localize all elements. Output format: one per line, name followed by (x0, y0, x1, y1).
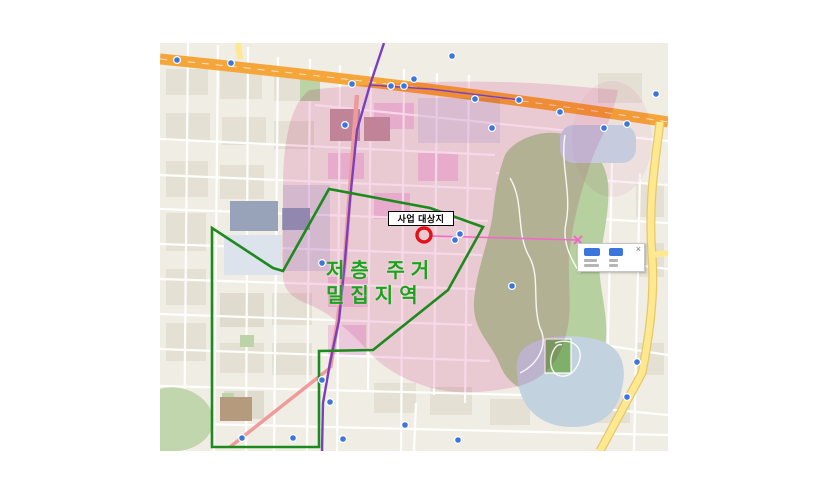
transit-marker-icon[interactable] (472, 96, 479, 103)
transit-marker-icon[interactable] (319, 260, 326, 267)
popup-text-line (584, 264, 599, 267)
transit-marker-icon[interactable] (319, 377, 326, 384)
density-label-line2: 밀집지역 (326, 284, 435, 309)
transit-marker-icon[interactable] (457, 231, 464, 238)
density-label-line1: 저층 주거 (326, 259, 435, 284)
map-canvas[interactable]: 사업 대상지 저층 주거 밀집지역 × (160, 43, 668, 451)
transit-marker-icon[interactable] (455, 437, 462, 444)
transit-marker-icon[interactable] (411, 76, 418, 83)
transit-marker-icon[interactable] (516, 97, 523, 104)
transit-marker-icon[interactable] (634, 359, 641, 366)
density-area-label: 저층 주거 밀집지역 (326, 259, 435, 309)
site-label: 사업 대상지 (388, 211, 454, 226)
page: { "map": { "overlay_labels": { "site": "… (0, 0, 833, 500)
transit-marker-icon[interactable] (388, 83, 395, 90)
transit-marker-icon[interactable] (653, 91, 660, 98)
transit-marker-icon[interactable] (449, 53, 456, 60)
close-icon[interactable]: × (636, 245, 641, 254)
transit-marker-icon[interactable] (342, 122, 349, 129)
transit-line-badge (584, 248, 600, 256)
popup-text-line (609, 259, 618, 262)
popup-text-line (584, 259, 597, 262)
transit-line-badge (609, 248, 623, 256)
transit-marker-icon[interactable] (327, 399, 334, 406)
transit-marker-icon[interactable] (239, 435, 246, 442)
transit-marker-icon[interactable] (228, 60, 235, 67)
transit-marker-icon[interactable] (601, 125, 608, 132)
corner-park (160, 387, 213, 451)
transit-marker-icon[interactable] (349, 81, 356, 88)
transit-marker-icon[interactable] (452, 237, 459, 244)
transit-marker-icon[interactable] (340, 436, 347, 443)
transit-marker-icon[interactable] (557, 109, 564, 116)
transit-marker-icon[interactable] (174, 57, 181, 64)
green-patch (240, 335, 254, 347)
transit-marker-icon[interactable] (290, 435, 297, 442)
transit-marker-icon[interactable] (624, 394, 631, 401)
transit-info-popup: × (577, 243, 645, 272)
popup-text-line (609, 264, 618, 267)
transit-marker-icon[interactable] (624, 121, 631, 128)
transit-marker-icon[interactable] (401, 83, 408, 90)
transit-marker-icon[interactable] (489, 125, 496, 132)
transit-marker-icon[interactable] (509, 283, 516, 290)
transit-marker-icon[interactable] (402, 422, 409, 429)
